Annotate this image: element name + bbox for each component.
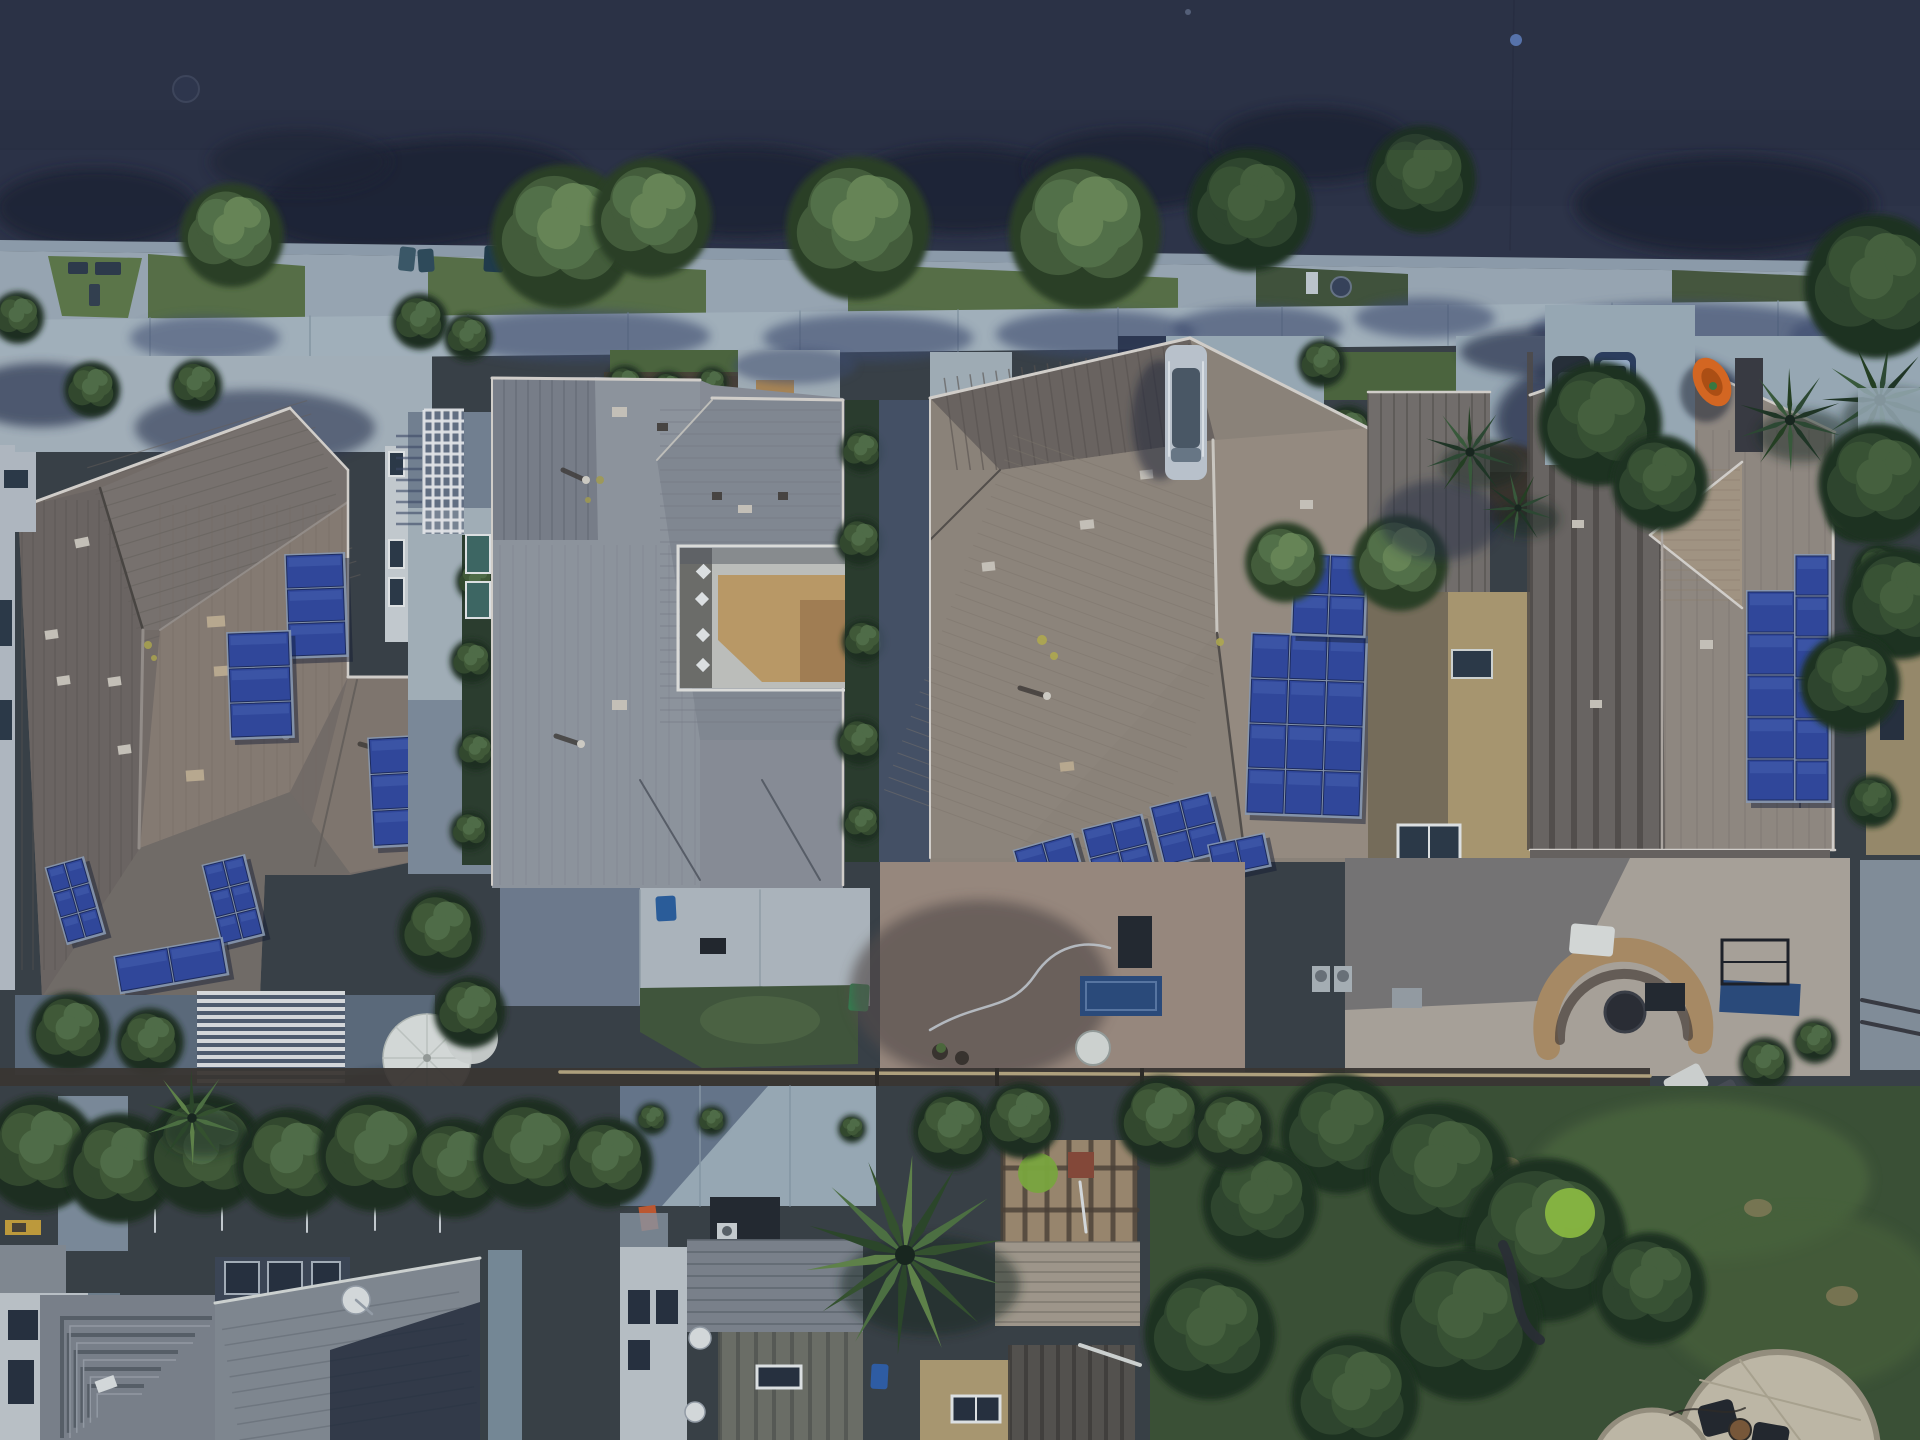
aerial-neighborhood-photo <box>0 0 1920 1440</box>
aerial-photo-canvas <box>0 0 1920 1440</box>
top-darkening <box>0 0 1920 150</box>
blue-haze <box>0 0 1920 1440</box>
